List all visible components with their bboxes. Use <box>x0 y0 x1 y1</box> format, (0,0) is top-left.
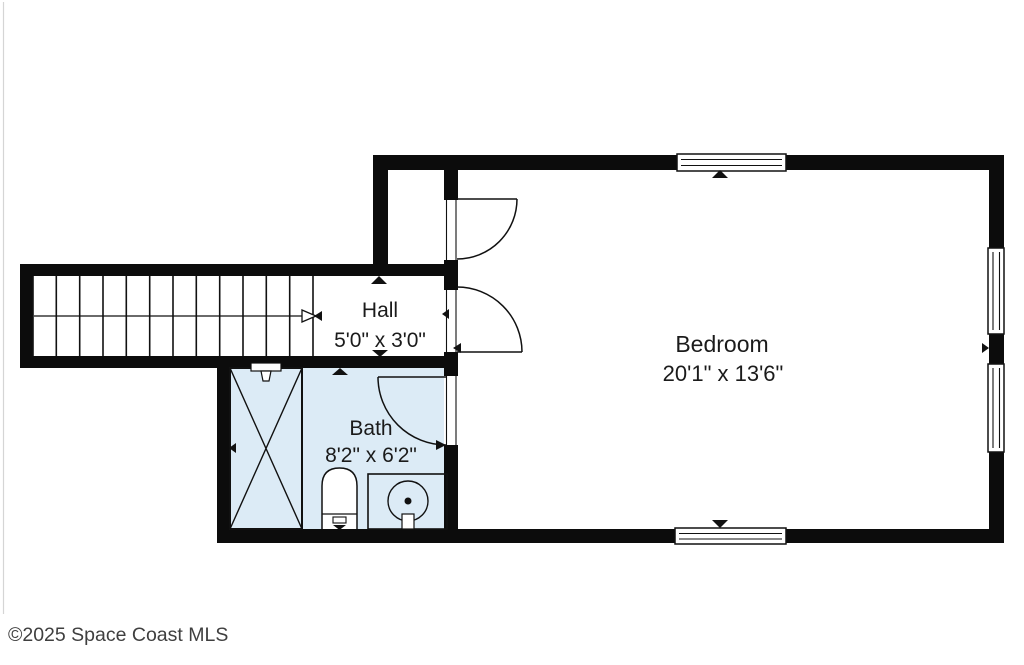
floorplan-svg: Hall 5'0" x 3'0" Bedroom 20'1" x 13'6" B… <box>0 0 1024 665</box>
window-bedroom-bottom <box>675 528 786 544</box>
window-bedroom-right-upper <box>988 248 1004 334</box>
door-closet <box>457 199 517 259</box>
hall-dimensions: 5'0" x 3'0" <box>334 329 426 352</box>
door-hall-bedroom <box>457 287 522 352</box>
window-bedroom-right-lower <box>988 364 1004 452</box>
marker-window-bottom <box>712 520 728 528</box>
floorplan-image: Hall 5'0" x 3'0" Bedroom 20'1" x 13'6" B… <box>0 0 1024 665</box>
staircase <box>33 276 322 356</box>
wall-bottom <box>217 529 1004 543</box>
wall-corridor-bottom <box>20 356 458 368</box>
bedroom-label: Bedroom <box>675 331 768 357</box>
bedroom-dimensions: 20'1" x 13'6" <box>663 361 784 386</box>
window-bedroom-top <box>677 154 786 171</box>
toilet-icon <box>322 468 357 530</box>
wall-bedroom-right <box>989 155 1004 543</box>
hall-label: Hall <box>362 299 398 322</box>
wall-corridor-top <box>20 264 444 276</box>
wall-closet-left <box>373 155 388 276</box>
marker-closet-entry <box>371 276 387 284</box>
bath-label: Bath <box>349 417 392 440</box>
wall-stairs-left <box>20 264 33 368</box>
walls <box>20 155 1004 543</box>
stairs-direction-arrow <box>34 310 322 322</box>
marker-right-wall <box>982 343 989 353</box>
copyright-watermark: ©2025 Space Coast MLS <box>8 624 228 646</box>
bath-dimensions: 8'2" x 6'2" <box>325 444 417 467</box>
wall-bath-left <box>217 356 230 543</box>
door-openings <box>444 200 458 445</box>
